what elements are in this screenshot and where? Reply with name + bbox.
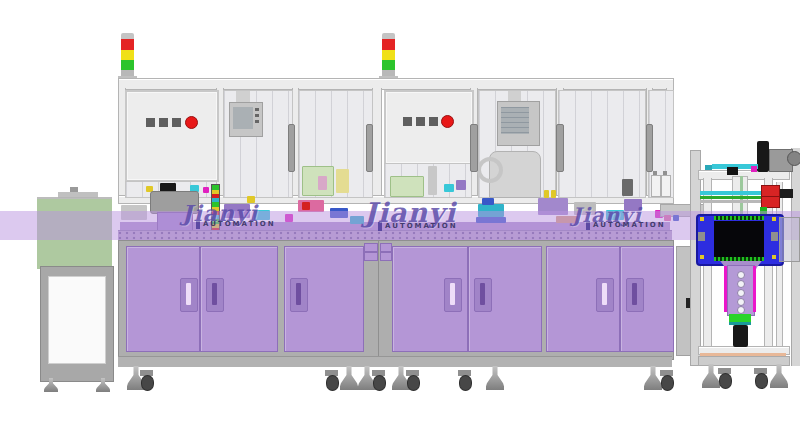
cabinet-door-handle	[626, 278, 644, 312]
panel-button	[403, 117, 412, 126]
fixture-block-magenta	[203, 187, 209, 193]
gripper-cylinder	[733, 325, 748, 347]
cabinet-door-handle	[180, 278, 198, 312]
caster-wheel	[458, 370, 471, 390]
door-handle-bar	[366, 124, 373, 172]
gantry-slider-block	[727, 167, 738, 175]
hmi-mount	[508, 91, 521, 101]
cabinet-vent	[380, 243, 392, 252]
signal-tower-red-segment	[382, 39, 395, 50]
chamber-bolt	[772, 217, 776, 221]
arm-rail-magenta	[724, 266, 727, 312]
cross-rail-grey	[700, 200, 770, 203]
door-handle-bar	[470, 124, 478, 172]
caster-wheel	[372, 370, 385, 390]
caster-wheel	[660, 370, 673, 390]
equipment-ring	[477, 157, 503, 183]
enclosure-top-beam	[118, 78, 674, 90]
cabinet-door-handle	[206, 278, 224, 312]
chamber-led-strip	[714, 257, 764, 261]
caster-wheel	[325, 370, 338, 390]
conveyor-highlight-band	[0, 211, 800, 240]
cabinet-door-handle	[596, 278, 614, 312]
chamber-bolt	[700, 217, 704, 221]
signal-tower-1	[121, 33, 134, 80]
panel-button	[159, 118, 168, 127]
panel-button	[429, 117, 438, 126]
fixture-chip-red	[302, 202, 310, 210]
station-post	[776, 182, 783, 364]
caster-wheel	[718, 368, 731, 388]
emergency-stop-button	[185, 116, 198, 129]
fixture-block-yellow	[247, 196, 255, 203]
fixture-block-dark	[622, 179, 633, 196]
fixture-block-yellow	[336, 169, 349, 193]
arm-hole	[737, 298, 745, 306]
fixture-block-cyan	[444, 184, 454, 192]
leveling-foot	[340, 366, 358, 390]
chamber-opening	[714, 221, 764, 258]
arm-hole	[737, 306, 745, 314]
fixture-block-green	[390, 176, 424, 197]
gripper-green-cap	[729, 314, 751, 322]
arm-rail-magenta	[753, 266, 756, 312]
chamber-tab	[698, 232, 705, 241]
signal-tower-red-segment	[121, 39, 134, 50]
arm-hole	[737, 271, 745, 279]
cross-rail-green	[700, 196, 770, 199]
hmi-screen	[501, 107, 529, 134]
caster-wheel	[406, 370, 419, 390]
frame-post-junction	[372, 88, 382, 196]
fixture-pillar	[428, 166, 437, 195]
door-handle-bar	[646, 124, 653, 172]
cabinet-base	[118, 356, 672, 367]
motor-cap	[787, 151, 800, 166]
cross-rail-cyan	[700, 191, 770, 195]
automation-line-render: Jianyi AUTOMATION Jianyi AUTOMATION Jian…	[0, 0, 800, 438]
panel-button	[172, 118, 181, 127]
door-handle-bar	[556, 124, 564, 172]
signal-tower-green-segment	[121, 60, 134, 70]
cabinet-door-handle	[290, 278, 308, 312]
panel-button	[416, 117, 425, 126]
cabinet-door-handle	[444, 278, 462, 312]
fixture-block-purple	[624, 199, 642, 211]
leveling-foot	[770, 364, 788, 388]
bottle	[651, 175, 661, 197]
arm-hole	[737, 289, 745, 297]
hmi-buttons	[255, 108, 259, 124]
hmi-mount	[236, 91, 250, 102]
signal-tower-2	[382, 33, 395, 80]
chamber-bolt	[700, 255, 704, 259]
bottle	[661, 175, 671, 197]
chamber-bolt	[772, 255, 776, 259]
panel-button	[146, 118, 155, 127]
signal-tower-green-segment	[382, 60, 395, 70]
leveling-foot	[486, 366, 504, 390]
station-post	[703, 178, 712, 366]
arm-hole	[737, 280, 745, 288]
fixture-chip-blue	[482, 198, 494, 205]
side-cover-panel	[779, 217, 800, 262]
hmi-screen	[233, 107, 253, 129]
adjust-knob	[780, 189, 793, 198]
tunnel-stand-panel	[48, 276, 106, 364]
control-panel-door	[384, 90, 474, 165]
fixture-block-pink	[318, 176, 327, 190]
cabinet-vent	[364, 252, 378, 261]
cabinet-vent	[364, 243, 378, 252]
signal-tower-yellow-segment	[382, 50, 395, 60]
rail-chip-teal	[705, 165, 712, 170]
emergency-stop-button	[441, 115, 454, 128]
signal-tower-yellow-segment	[121, 50, 134, 60]
tunnel-knob	[70, 187, 78, 192]
fixture-block-purple	[456, 180, 466, 190]
camera-cylinder	[757, 141, 769, 172]
fixture-chip-yellow	[544, 190, 549, 198]
caster-wheel	[140, 370, 153, 390]
caster-wheel	[754, 368, 767, 388]
chamber-led-strip	[714, 216, 764, 220]
cabinet-vent	[380, 252, 392, 261]
cabinet-door-handle	[474, 278, 492, 312]
door-handle-bar	[288, 124, 295, 172]
fixture-chip-yellow	[551, 190, 556, 198]
control-panel-door	[125, 90, 219, 182]
chamber-tab	[771, 232, 778, 241]
rail-chip-magenta	[751, 166, 757, 172]
